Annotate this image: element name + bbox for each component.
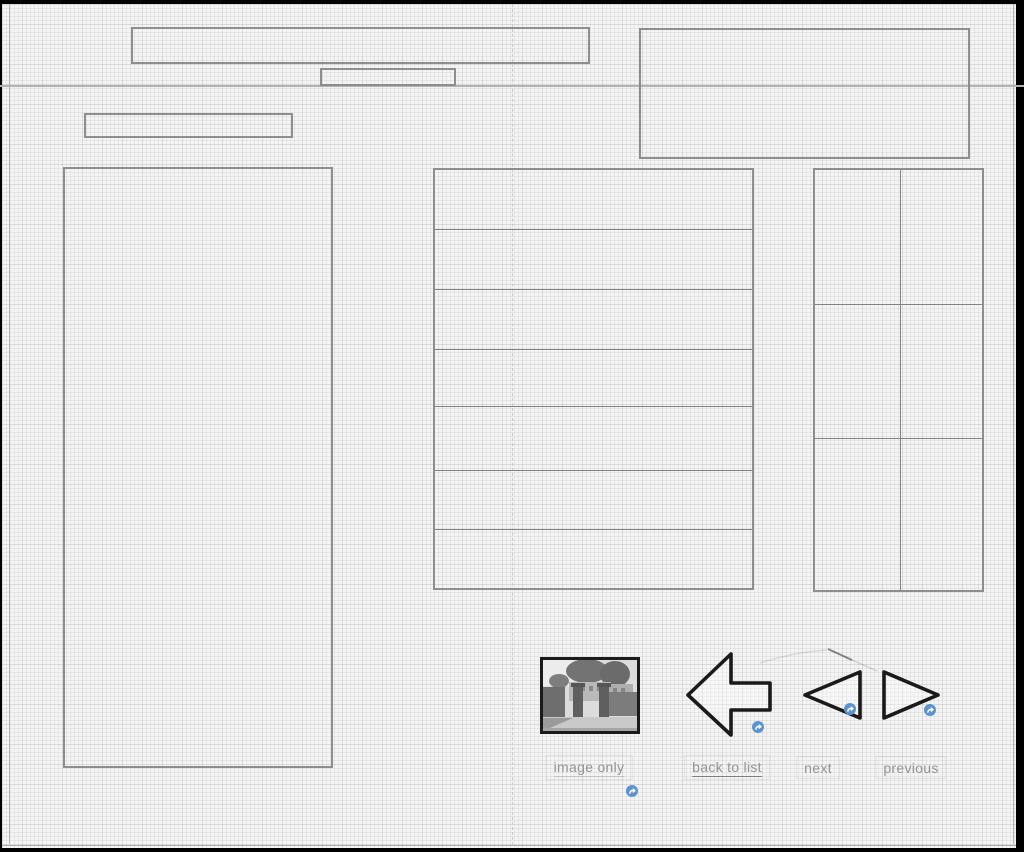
link-badge-icon[interactable]: [626, 785, 638, 797]
table-row-divider: [435, 349, 752, 350]
next-link[interactable]: next: [796, 756, 840, 779]
next-label: next: [804, 760, 832, 776]
link-badge-icon[interactable]: [752, 721, 764, 733]
table-row-divider: [435, 406, 752, 407]
bottom-margin-line: [2, 845, 1016, 846]
grid-row-divider: [815, 438, 982, 439]
photo-thumbnail[interactable]: [540, 657, 640, 734]
thumbnail-photo-icon: [543, 660, 637, 731]
previous-link[interactable]: previous: [875, 756, 946, 779]
table-row-divider: [435, 289, 752, 290]
image-only-label: image only: [554, 759, 625, 777]
detail-table-placeholder: [433, 168, 754, 590]
header-bar-placeholder: [131, 27, 590, 64]
left-panel-placeholder: [63, 167, 333, 768]
next-triangle-icon[interactable]: [800, 667, 866, 723]
link-badge-icon[interactable]: [844, 703, 856, 715]
previous-label: previous: [883, 760, 938, 776]
table-row-divider: [435, 229, 752, 230]
side-grid-placeholder: [813, 168, 984, 592]
subheader-placeholder: [320, 68, 456, 86]
table-row-divider: [435, 470, 752, 471]
back-to-list-link[interactable]: back to list: [684, 755, 770, 780]
section-title-placeholder: [84, 113, 293, 138]
left-margin-line: [9, 4, 10, 844]
back-to-list-label: back to list: [692, 759, 762, 777]
link-badge-icon[interactable]: [924, 704, 936, 716]
grid-row-divider: [815, 304, 982, 305]
right-margin-line: [1013, 4, 1014, 844]
grid-column-divider: [900, 170, 901, 590]
header-right-panel-placeholder: [639, 28, 970, 159]
table-row-divider: [435, 529, 752, 530]
wireframe-canvas: image only back to list next previous: [0, 0, 1024, 852]
image-only-link[interactable]: image only: [546, 755, 633, 780]
